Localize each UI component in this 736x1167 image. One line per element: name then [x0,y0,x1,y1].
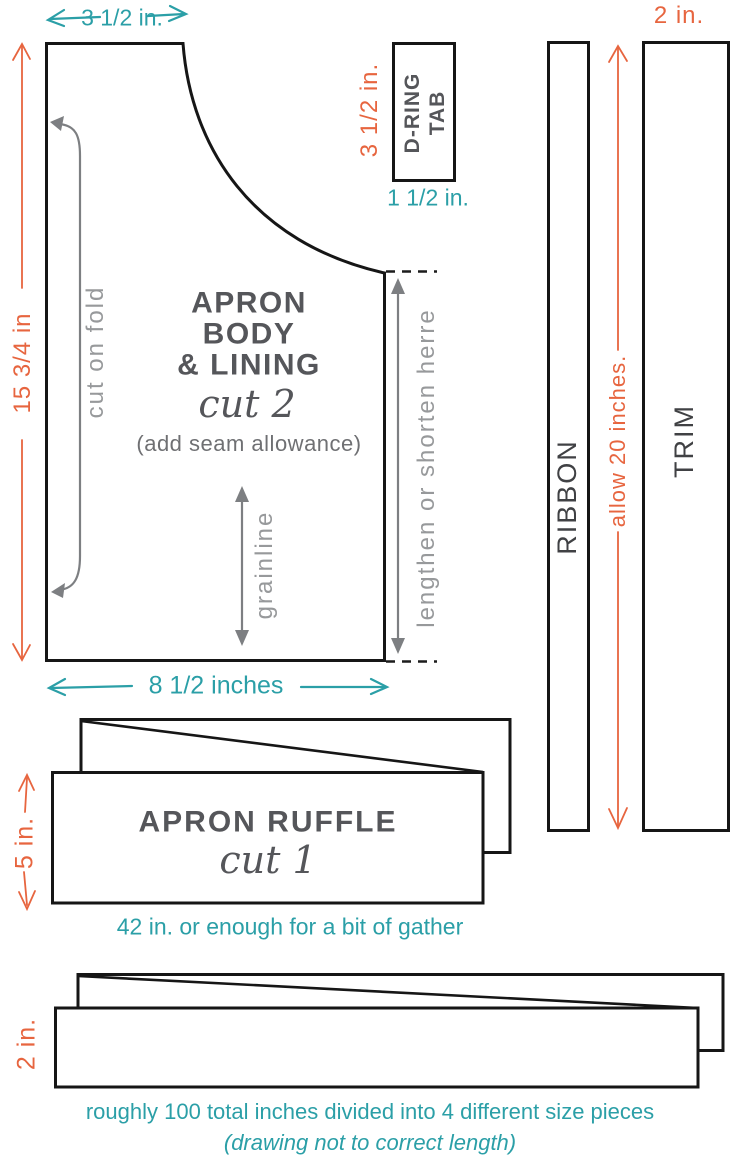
lengthen-arrowhead-top [391,278,405,294]
ribbon-outline [549,43,589,831]
cut-on-fold-label: cut on fold [83,286,109,419]
apron-pattern-diagram: 3 1/2 in. 15 3/4 in cut on fold APRON BO… [0,0,736,1167]
trim-label: TRIM [670,404,700,478]
apron-top-width-label: 3 1/2 in. [81,5,163,30]
apron-body-title-line2: BODY [203,318,296,351]
grainline-label: grainline [252,511,278,620]
apron-body-title-line1: APRON [191,287,307,320]
apron-side-height-label: 15 3/4 in [10,312,36,413]
trim-width-label: 2 in. [654,3,704,29]
seam-allowance-note: (add seam allowance) [136,432,361,456]
dring-tab-label: D-RING TAB [400,73,450,154]
ties-total-length-note: roughly 100 total inches divided into 4 … [86,1100,654,1124]
apron-body-cut-label: cut 2 [198,384,295,426]
ties-front-outline [56,1008,699,1087]
lengthen-arrowhead-bottom [391,638,405,654]
ruffle-height-arrow-up [25,778,27,812]
pattern-shapes-layer [0,0,736,1167]
ruffle-height-label: 5 in. [11,817,39,869]
lengthen-shorten-label: lengthen or shorten herre [414,308,440,628]
dring-tab-width-label: 1 1/2 in. [387,185,469,210]
dring-tab-label-line2: TAB [425,73,450,154]
ruffle-cut-label: cut 1 [219,840,316,882]
bottom-width-arrow-left [51,686,132,688]
ruffle-length-note: 42 in. or enough for a bit of gather [117,914,464,939]
ribbon-label: RIBBON [553,439,583,555]
ties-height-label: 2 in. [13,1018,41,1070]
ruffle-title: APRON RUFFLE [139,806,398,839]
dring-tab-height-label: 3 1/2 in. [357,63,383,157]
dring-tab-label-line1: D-RING [400,73,425,154]
ties-scale-note: (drawing not to correct length) [224,1131,516,1155]
apron-body-title-line3: & LINING [177,349,321,382]
allow-length-label: allow 20 inches. [606,355,630,528]
ruffle-height-arrow-down [24,872,27,905]
apron-bottom-width-label: 8 1/2 inches [149,672,284,700]
